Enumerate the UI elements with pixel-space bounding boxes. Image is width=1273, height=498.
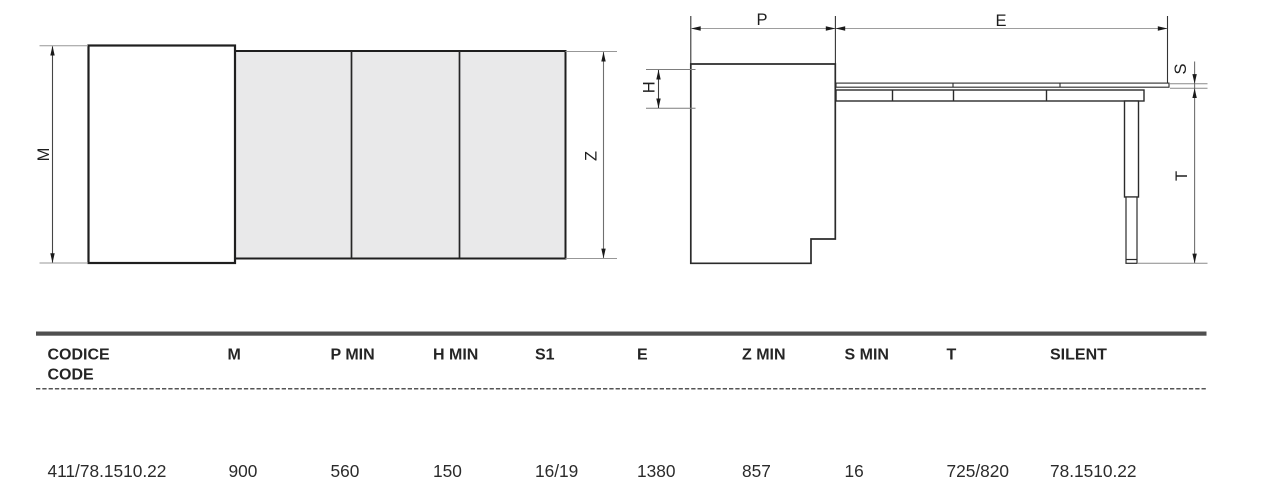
svg-text:411/78.1510.22: 411/78.1510.22 — [48, 461, 167, 481]
svg-text:Z MIN: Z MIN — [742, 347, 786, 364]
svg-text:S1: S1 — [535, 347, 555, 364]
svg-text:S: S — [1172, 63, 1190, 74]
svg-text:T: T — [947, 347, 957, 364]
svg-text:S MIN: S MIN — [845, 347, 889, 364]
svg-text:725/820: 725/820 — [947, 461, 1009, 481]
svg-text:P MIN: P MIN — [331, 347, 375, 364]
svg-text:Z: Z — [583, 151, 601, 161]
svg-text:CODICE: CODICE — [48, 347, 111, 364]
svg-text:H MIN: H MIN — [433, 347, 478, 364]
svg-text:560: 560 — [331, 461, 360, 481]
svg-text:150: 150 — [433, 461, 462, 481]
svg-text:M: M — [228, 347, 241, 364]
svg-text:E: E — [995, 12, 1006, 30]
svg-text:857: 857 — [742, 461, 771, 481]
svg-text:16/19: 16/19 — [535, 461, 578, 481]
svg-text:P: P — [756, 11, 767, 29]
svg-text:CODE: CODE — [48, 367, 95, 384]
svg-text:M: M — [35, 148, 53, 162]
svg-text:78.1510.22: 78.1510.22 — [1050, 461, 1137, 481]
svg-text:16: 16 — [845, 461, 864, 481]
svg-text:T: T — [1173, 171, 1191, 181]
svg-text:E: E — [637, 347, 648, 364]
svg-text:H: H — [641, 81, 659, 93]
svg-text:SILENT: SILENT — [1050, 347, 1107, 364]
svg-text:1380: 1380 — [637, 461, 675, 481]
svg-text:900: 900 — [229, 461, 258, 481]
